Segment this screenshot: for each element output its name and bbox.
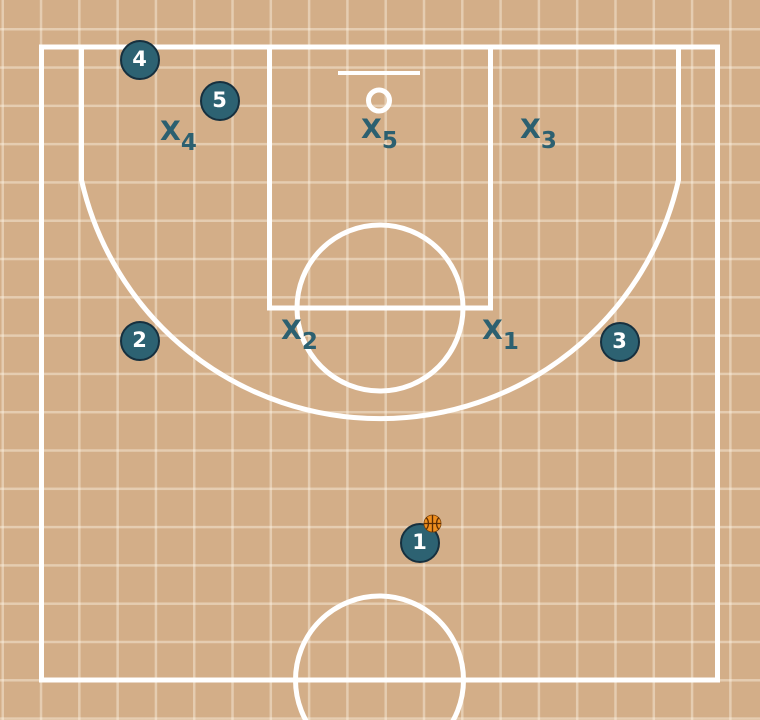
defender-x-glyph: X (361, 114, 382, 145)
defense-player-X4[interactable]: X4 (160, 118, 197, 145)
defense-player-X3[interactable]: X3 (520, 116, 557, 143)
defender-x-glyph: X (482, 315, 503, 346)
basketball-graphic (423, 514, 442, 533)
player-number: 2 (132, 330, 147, 351)
player-number: 4 (132, 49, 147, 70)
defender-x-glyph: X (520, 114, 541, 145)
defender-number: 5 (382, 128, 398, 154)
defender-x-glyph: X (281, 315, 302, 346)
offense-player-5[interactable]: 5 (200, 81, 240, 121)
rim (369, 90, 390, 111)
defense-player-X1[interactable]: X1 (482, 317, 519, 344)
defender-number: 1 (503, 329, 519, 355)
defense-player-X5[interactable]: X5 (361, 116, 398, 143)
three-point-line (82, 47, 679, 419)
player-number: 5 (212, 90, 227, 111)
court-lines (0, 0, 760, 720)
basketball-court: 12345X1X2X3X4X5 (0, 0, 760, 720)
basketball-icon[interactable] (423, 514, 442, 533)
center-circle (296, 596, 464, 720)
defender-number: 4 (181, 130, 197, 156)
player-number: 1 (412, 532, 427, 553)
offense-player-2[interactable]: 2 (120, 321, 160, 361)
player-number: 3 (612, 331, 627, 352)
key-lane (270, 47, 491, 308)
defender-number: 2 (302, 329, 318, 355)
offense-player-3[interactable]: 3 (600, 322, 640, 362)
defense-player-X2[interactable]: X2 (281, 317, 318, 344)
defender-x-glyph: X (160, 116, 181, 147)
offense-player-4[interactable]: 4 (120, 40, 160, 80)
defender-number: 3 (541, 128, 557, 154)
